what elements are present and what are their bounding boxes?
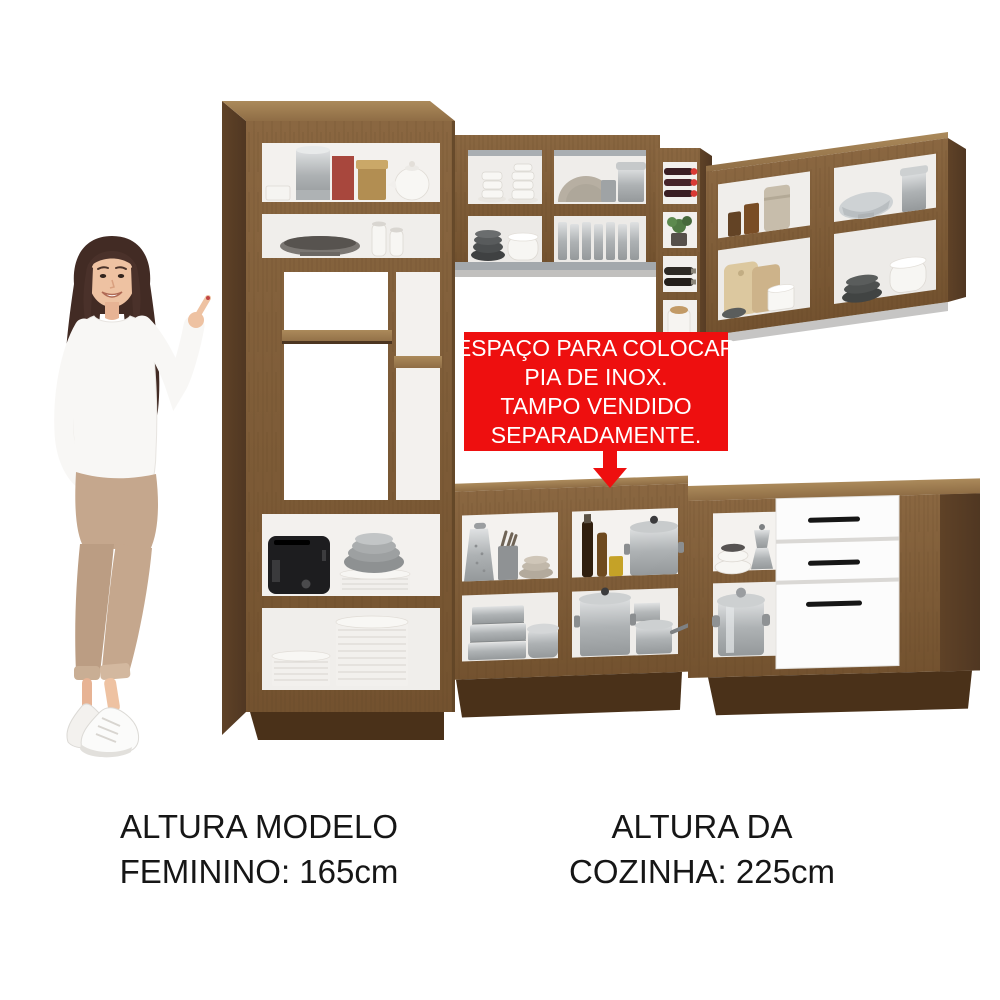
caption-line: ALTURA MODELO (94, 804, 424, 849)
pointing-finger (198, 298, 208, 315)
sink-space-callout: ESPAÇO PARA COLOCAR PIA DE INOX. TAMPO V… (464, 332, 728, 451)
callout-line: TAMPO VENDIDO (500, 392, 691, 421)
upper-cabinet-right (706, 132, 966, 345)
model-woman (64, 236, 210, 757)
glasses-row (558, 222, 639, 260)
callout-line: PIA DE INOX. (524, 363, 667, 392)
base-cabinet-middle (448, 476, 690, 718)
caption-line: COZINHA: 225cm (537, 849, 867, 894)
base-cabinet-corner (688, 478, 980, 716)
upper-cabinet-middle (455, 135, 660, 277)
neck (105, 302, 119, 320)
white-drawers (776, 495, 899, 668)
model-height-caption: ALTURA MODELO FEMININO: 165cm (94, 804, 424, 894)
sneakers (67, 704, 139, 757)
caption-line: ALTURA DA (537, 804, 867, 849)
wine-bottles (664, 168, 697, 197)
kitchen-height-caption: ALTURA DA COZINHA: 225cm (537, 804, 867, 894)
callout-line: SEPARADAMENTE. (491, 421, 701, 450)
toaster (268, 536, 330, 594)
caption-line: FEMININO: 165cm (94, 849, 424, 894)
product-image: ESPAÇO PARA COLOCAR PIA DE INOX. TAMPO V… (0, 0, 1000, 1000)
wine-rack (656, 148, 712, 354)
callout-line: ESPAÇO PARA COLOCAR (456, 334, 736, 363)
pants-hips (75, 472, 158, 550)
tall-cabinet (222, 101, 455, 740)
